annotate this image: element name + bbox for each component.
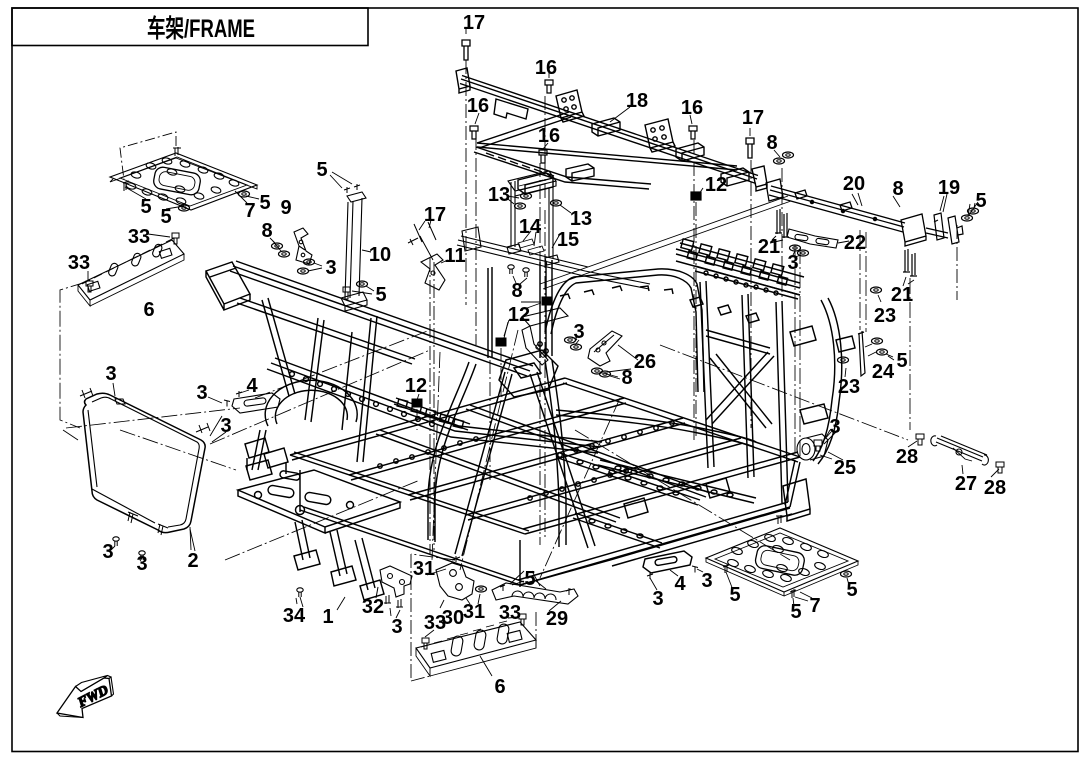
svg-text:19: 19 — [938, 177, 960, 199]
svg-text:6: 6 — [143, 299, 154, 321]
svg-text:33: 33 — [128, 226, 150, 248]
svg-text:21: 21 — [758, 236, 780, 258]
svg-text:3: 3 — [136, 553, 147, 575]
svg-text:17: 17 — [742, 107, 764, 129]
svg-text:3: 3 — [787, 252, 798, 274]
svg-text:28: 28 — [984, 477, 1006, 499]
svg-text:5: 5 — [259, 192, 270, 214]
svg-text:24: 24 — [872, 361, 895, 383]
svg-text:3: 3 — [102, 541, 113, 563]
svg-text:3: 3 — [701, 570, 712, 592]
svg-text:5: 5 — [896, 350, 907, 372]
svg-text:8: 8 — [892, 178, 903, 200]
svg-text:32: 32 — [362, 596, 384, 618]
svg-text:4: 4 — [246, 375, 258, 397]
svg-text:车架/FRAME: 车架/FRAME — [147, 14, 255, 43]
svg-text:5: 5 — [729, 584, 740, 606]
svg-text:2: 2 — [187, 550, 198, 572]
svg-text:17: 17 — [463, 12, 485, 34]
svg-text:33: 33 — [499, 602, 521, 624]
svg-text:31: 31 — [463, 601, 485, 623]
svg-text:3: 3 — [196, 382, 207, 404]
svg-text:3: 3 — [829, 416, 840, 438]
svg-text:5: 5 — [160, 206, 171, 228]
svg-text:3: 3 — [573, 321, 584, 343]
svg-text:26: 26 — [634, 351, 656, 373]
svg-text:28: 28 — [896, 446, 918, 468]
svg-text:18: 18 — [626, 90, 648, 112]
svg-text:5: 5 — [375, 284, 386, 306]
svg-text:12: 12 — [405, 375, 427, 397]
svg-text:1: 1 — [322, 606, 333, 628]
svg-text:17: 17 — [424, 204, 446, 226]
svg-text:13: 13 — [570, 208, 592, 230]
svg-text:14: 14 — [519, 216, 542, 238]
svg-text:15: 15 — [557, 229, 579, 251]
svg-text:16: 16 — [535, 57, 557, 79]
svg-text:3: 3 — [325, 257, 336, 279]
svg-text:25: 25 — [834, 457, 856, 479]
svg-text:16: 16 — [681, 97, 703, 119]
svg-text:3: 3 — [220, 415, 231, 437]
svg-text:16: 16 — [467, 95, 489, 117]
svg-text:22: 22 — [844, 232, 866, 254]
svg-text:12: 12 — [508, 304, 530, 326]
svg-text:6: 6 — [494, 676, 505, 698]
svg-text:8: 8 — [621, 367, 632, 389]
svg-text:10: 10 — [369, 244, 391, 266]
svg-text:27: 27 — [955, 473, 977, 495]
svg-text:33: 33 — [68, 252, 90, 274]
svg-text:5: 5 — [846, 579, 857, 601]
svg-text:31: 31 — [413, 558, 435, 580]
svg-text:23: 23 — [874, 305, 896, 327]
svg-text:3: 3 — [391, 616, 402, 638]
svg-text:5: 5 — [790, 601, 801, 623]
svg-text:8: 8 — [766, 132, 777, 154]
svg-text:5: 5 — [975, 190, 986, 212]
svg-text:7: 7 — [244, 200, 255, 222]
svg-text:8: 8 — [511, 280, 522, 302]
svg-text:8: 8 — [261, 220, 272, 242]
svg-text:20: 20 — [843, 173, 865, 195]
svg-text:5: 5 — [140, 196, 151, 218]
svg-text:29: 29 — [546, 608, 568, 630]
svg-text:4: 4 — [674, 573, 686, 595]
svg-text:34: 34 — [283, 605, 306, 627]
svg-text:5: 5 — [524, 568, 535, 590]
svg-text:23: 23 — [838, 376, 860, 398]
svg-text:33: 33 — [424, 612, 446, 634]
svg-text:5: 5 — [316, 159, 327, 181]
svg-text:3: 3 — [652, 588, 663, 610]
svg-text:21: 21 — [891, 284, 913, 306]
svg-text:9: 9 — [280, 197, 291, 219]
svg-text:16: 16 — [538, 125, 560, 147]
svg-text:3: 3 — [105, 363, 116, 385]
svg-text:FWD: FWD — [75, 683, 111, 711]
svg-text:12: 12 — [705, 174, 727, 196]
svg-text:13: 13 — [488, 184, 510, 206]
svg-text:11: 11 — [444, 245, 465, 267]
svg-text:7: 7 — [809, 595, 820, 617]
